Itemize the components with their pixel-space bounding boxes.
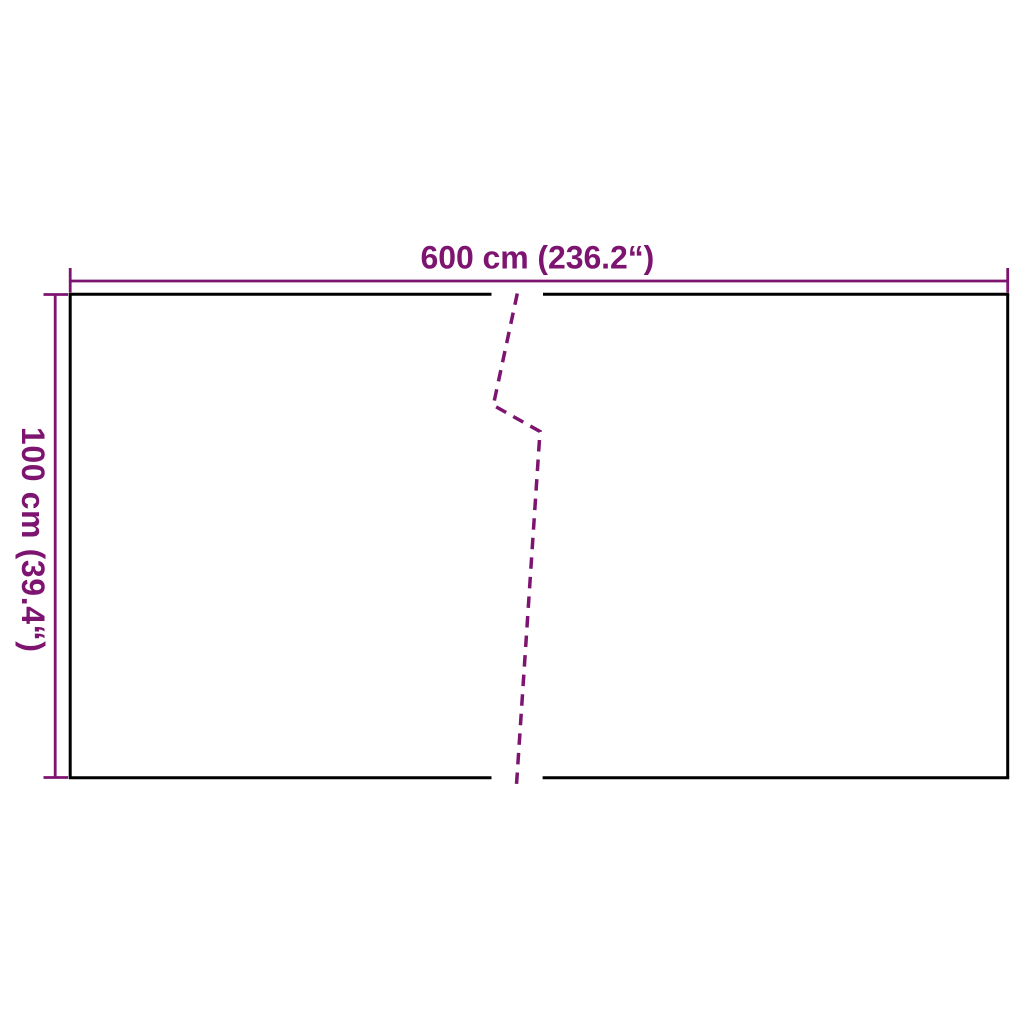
svg-text:100 cm (39.4“): 100 cm (39.4“) <box>15 427 51 652</box>
svg-text:600 cm (236.2“): 600 cm (236.2“) <box>421 239 655 275</box>
